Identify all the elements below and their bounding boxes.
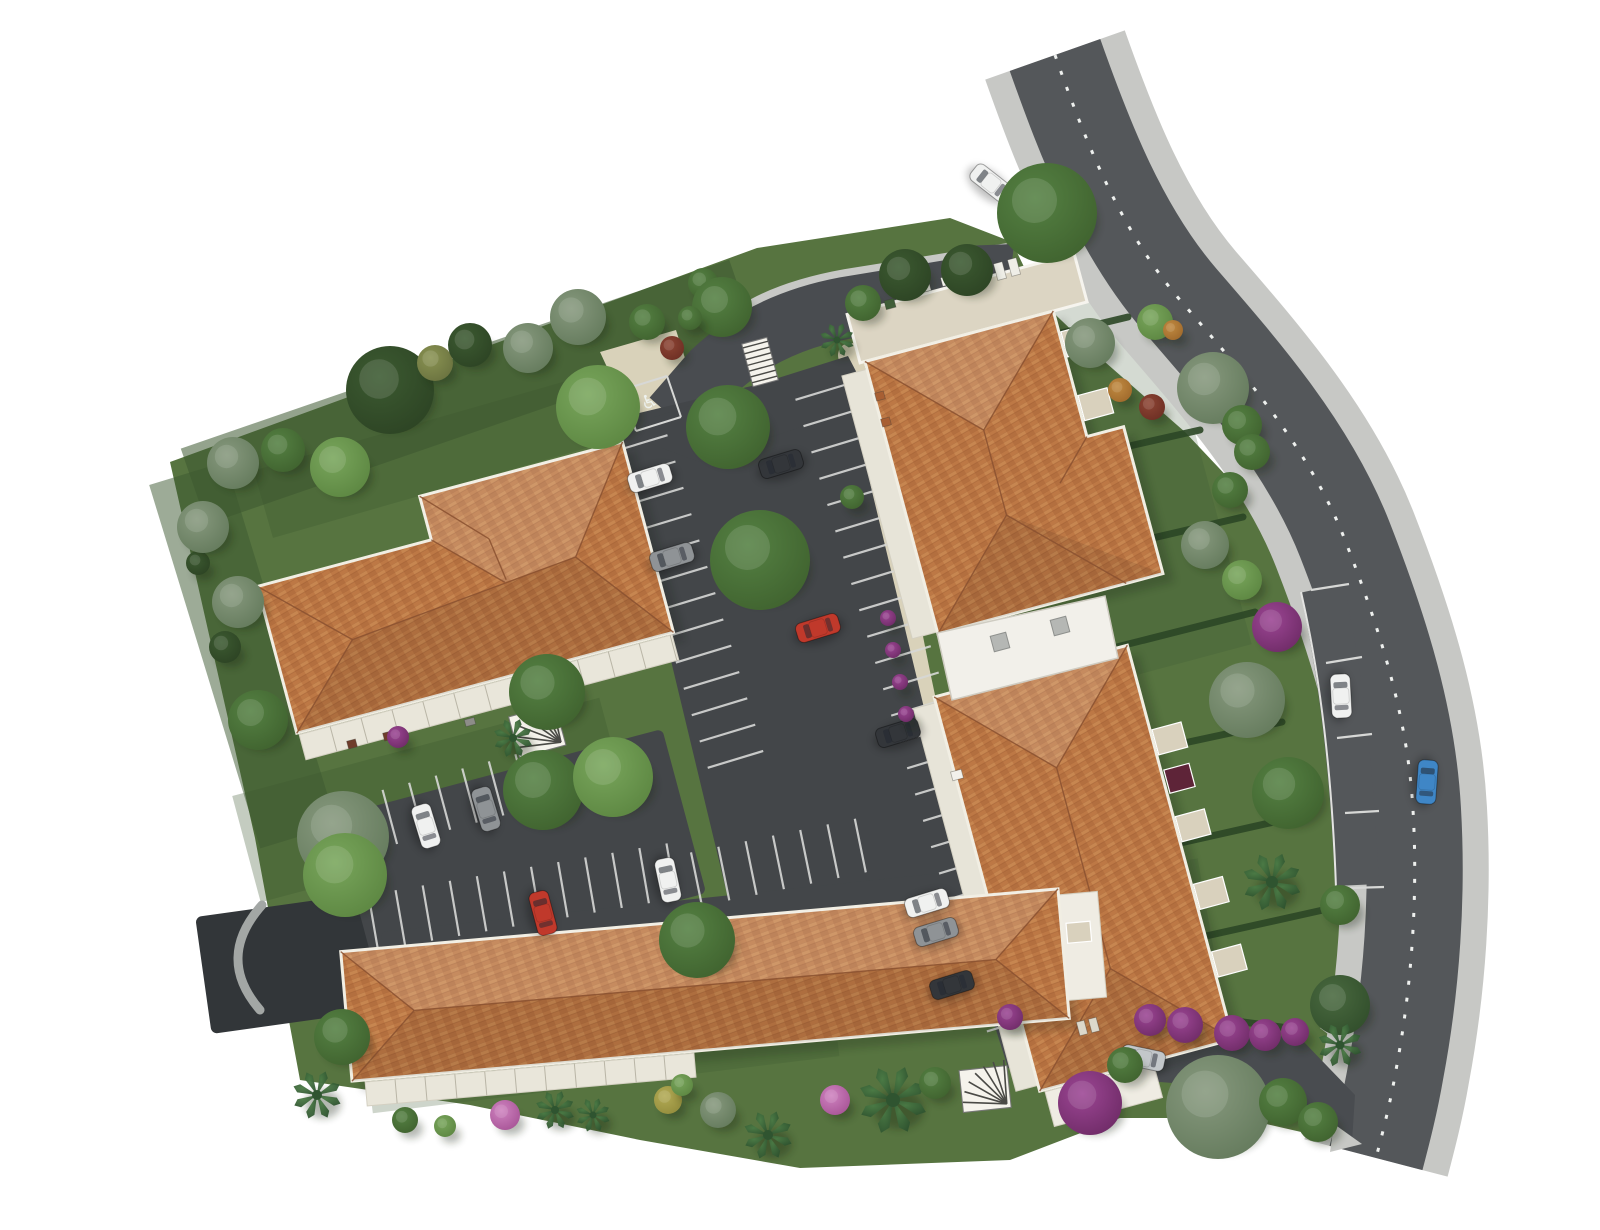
patio-furniture bbox=[884, 298, 896, 309]
patio-furniture bbox=[347, 739, 358, 749]
patio-furniture bbox=[881, 417, 892, 427]
site-plan-svg: ♿ bbox=[0, 0, 1600, 1230]
site-plan-canvas: ♿ bbox=[0, 0, 1600, 1230]
skylight bbox=[1050, 616, 1070, 636]
tree bbox=[1166, 1055, 1271, 1159]
patio bbox=[1066, 921, 1092, 943]
patio-furniture bbox=[875, 391, 886, 401]
bay-divider bbox=[1350, 887, 1384, 888]
skylight bbox=[990, 632, 1010, 652]
site-plan: ♿ bbox=[0, 0, 1600, 1230]
